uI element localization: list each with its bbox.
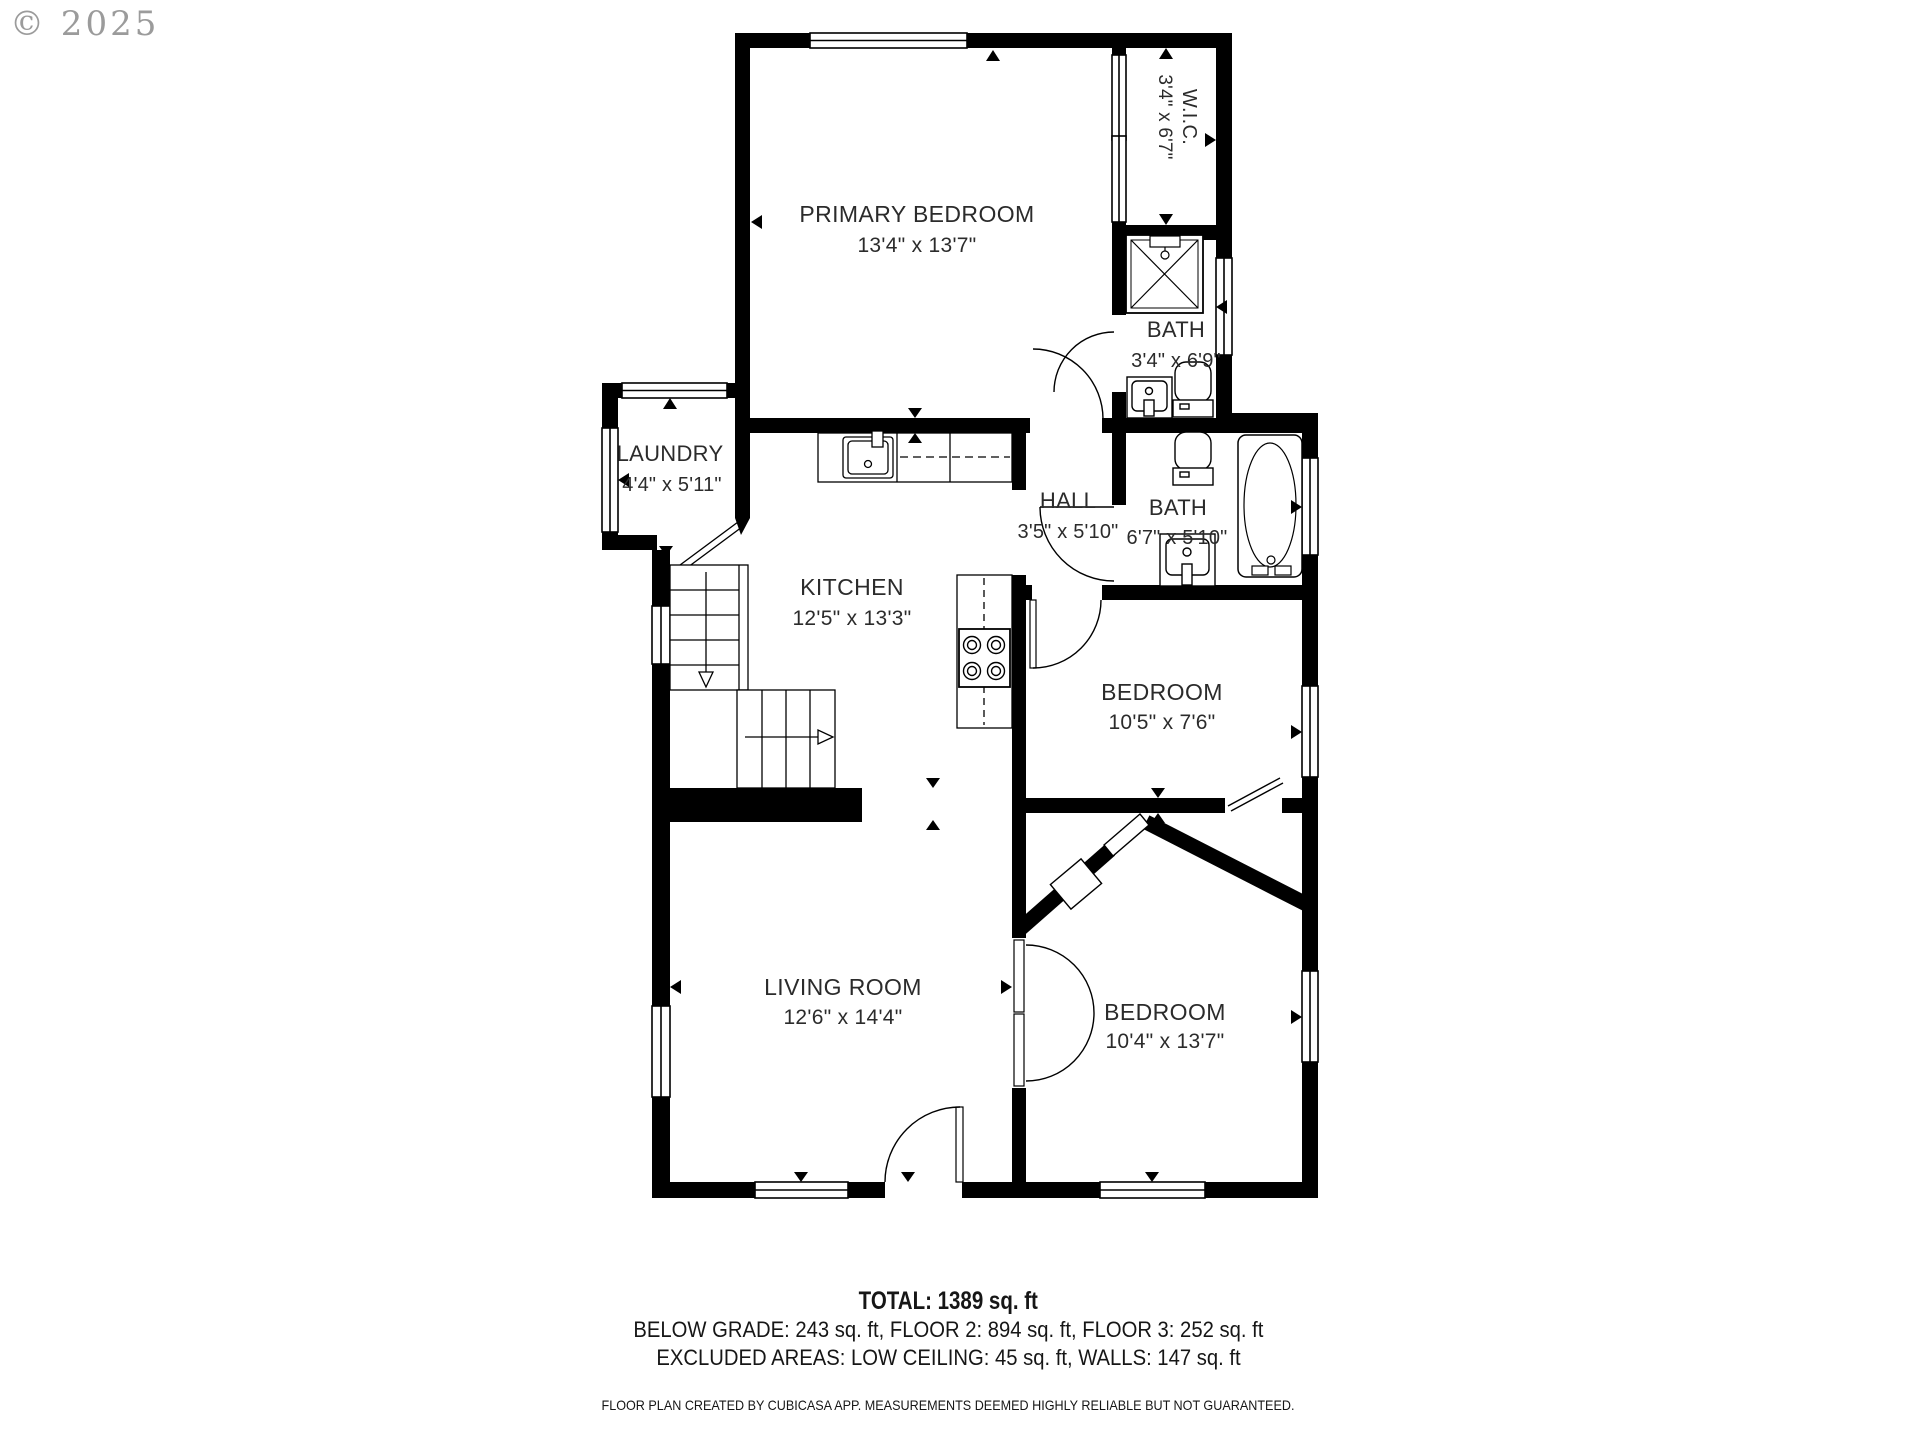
door-leaf	[1228, 778, 1280, 806]
excluded-areas-text: EXCLUDED AREAS: LOW CEILING: 45 sq. ft, …	[656, 1344, 1240, 1372]
room-dims-bath-upper: 3'4" x 6'9"	[1131, 350, 1221, 372]
door-arc	[1033, 600, 1101, 668]
window	[1112, 136, 1126, 222]
bathroom-sink	[1127, 377, 1172, 418]
window	[1100, 1182, 1205, 1198]
door-leaf	[676, 522, 738, 568]
room-label-wic: W.I.C.	[1178, 89, 1200, 145]
window	[1112, 55, 1126, 140]
room-label-kitchen: KITCHEN	[800, 574, 904, 600]
shower	[1126, 235, 1203, 313]
window	[1302, 971, 1318, 1062]
room-label-bedroom-large: BEDROOM	[1104, 999, 1226, 1025]
room-dims-kitchen: 12'5" x 13'3"	[792, 607, 911, 630]
door-arc	[1026, 1013, 1094, 1081]
room-dims-bath-lower: 6'7" x 5'10"	[1127, 527, 1228, 549]
room-label-laundry: LAUNDRY	[617, 441, 724, 466]
door-leaf	[1030, 600, 1036, 668]
kitchen-sink	[843, 431, 893, 478]
floor-plan-page: © 2025	[0, 0, 1920, 1440]
room-dims-wic: 3'4" x 6'7"	[1154, 74, 1175, 159]
room-dims-laundry: 4'4" x 5'11"	[622, 474, 721, 496]
room-label-bath-upper: BATH	[1147, 317, 1205, 342]
room-dims-hall: 3'5" x 5'10"	[1018, 521, 1119, 543]
room-label-hall: HALL	[1040, 488, 1096, 513]
room-dims-bedroom-small: 10'5" x 7'6"	[1108, 711, 1215, 734]
room-dims-bedroom-large: 10'4" x 13'7"	[1105, 1030, 1224, 1053]
shower-head	[1150, 236, 1180, 247]
closet-door-leaf	[1014, 940, 1024, 1012]
window	[652, 606, 670, 664]
door-arc	[1040, 507, 1114, 581]
total-area-text: TOTAL: 1389 sq. ft	[858, 1288, 1037, 1316]
door-arc	[1054, 332, 1114, 392]
window	[652, 1006, 670, 1097]
room-label-living-room: LIVING ROOM	[764, 974, 922, 1000]
area-summary: TOTAL: 1389 sq. ft BELOW GRADE: 243 sq. …	[0, 1288, 1896, 1413]
window	[1302, 686, 1318, 777]
room-label-bath-lower: BATH	[1149, 495, 1207, 520]
room-dims-primary-bedroom: 13'4" x 13'7"	[857, 234, 976, 257]
room-labels: PRIMARY BEDROOM 13'4" x 13'7" W.I.C. 3'4…	[617, 74, 1228, 1053]
floor-areas-text: BELOW GRADE: 243 sq. ft, FLOOR 2: 894 sq…	[633, 1316, 1263, 1344]
room-label-bedroom-small: BEDROOM	[1101, 679, 1223, 705]
front-door-leaf	[956, 1107, 963, 1182]
door-arc	[1033, 349, 1103, 419]
window	[1302, 458, 1318, 555]
stove	[959, 629, 1010, 687]
door-arc	[1026, 945, 1094, 1013]
floor-plan-drawing: PRIMARY BEDROOM 13'4" x 13'7" W.I.C. 3'4…	[0, 0, 1920, 1440]
window	[622, 383, 727, 398]
room-label-primary-bedroom: PRIMARY BEDROOM	[799, 201, 1034, 227]
toilet	[1173, 432, 1213, 485]
front-door-arc	[885, 1107, 960, 1182]
door-leaf	[1231, 783, 1283, 811]
window	[810, 33, 967, 48]
window	[755, 1182, 848, 1198]
closet-door-leaf	[1014, 1014, 1024, 1086]
room-dims-living-room: 12'6" x 14'4"	[783, 1006, 902, 1029]
disclaimer-text: FLOOR PLAN CREATED BY CUBICASA APP. MEAS…	[602, 1397, 1295, 1413]
